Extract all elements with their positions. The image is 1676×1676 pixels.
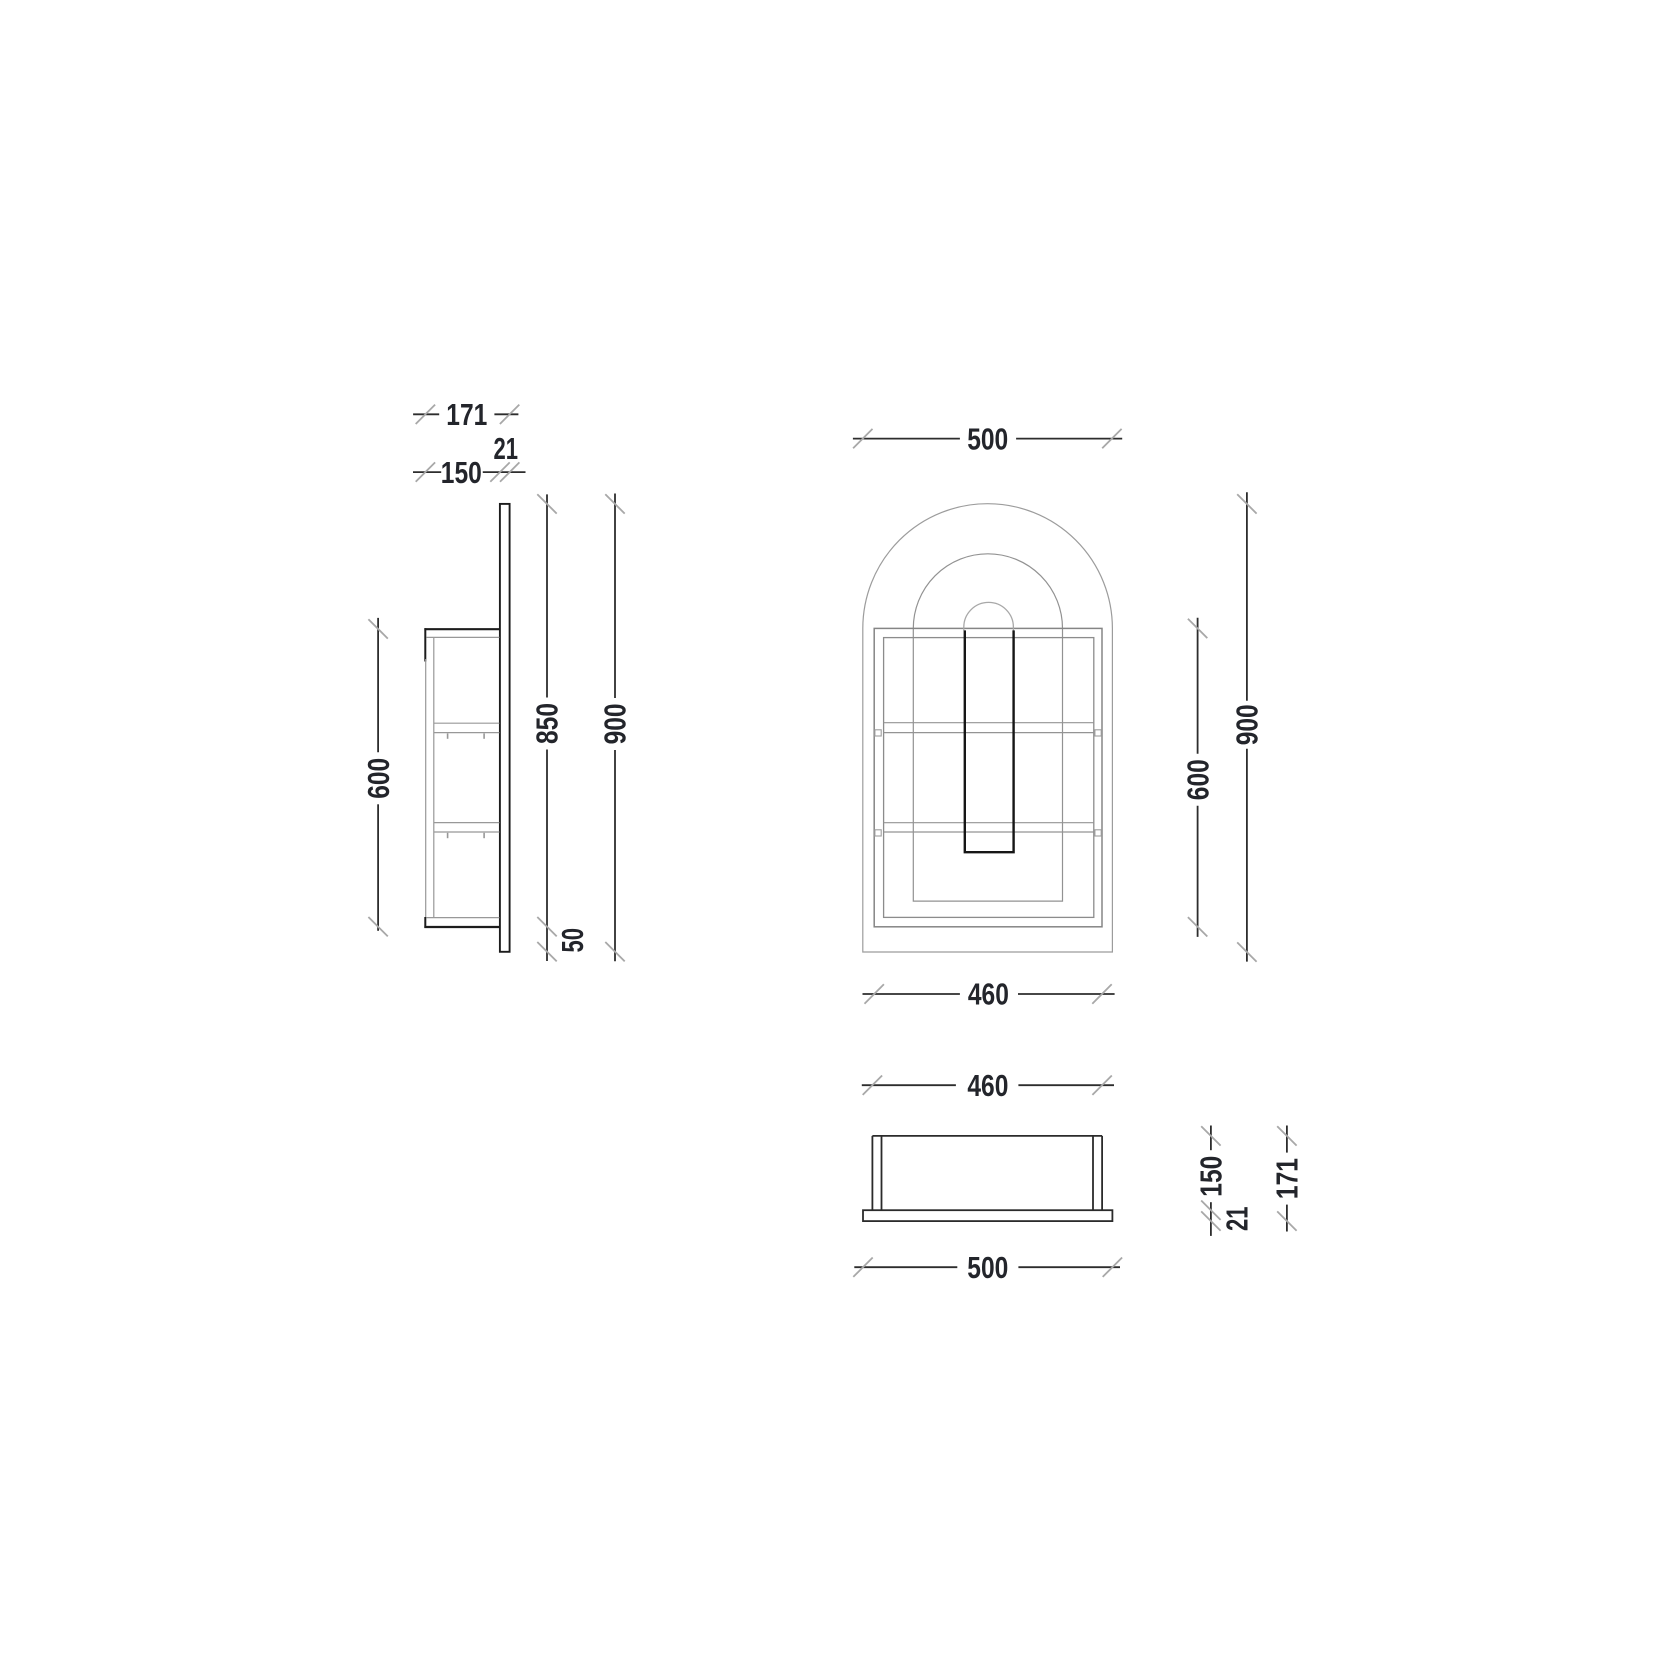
svg-text:460: 460 [968,977,1009,1012]
svg-text:150: 150 [441,455,482,490]
svg-text:460: 460 [967,1068,1008,1103]
svg-text:171: 171 [446,397,487,432]
svg-text:171: 171 [1270,1158,1305,1199]
svg-text:150: 150 [1194,1156,1229,1197]
svg-text:900: 900 [1230,704,1265,745]
svg-text:900: 900 [598,703,633,744]
svg-text:600: 600 [1180,759,1215,800]
svg-text:850: 850 [530,703,565,744]
svg-text:21: 21 [1220,1207,1255,1232]
svg-text:600: 600 [361,758,396,799]
svg-text:500: 500 [967,1250,1008,1285]
svg-text:21: 21 [494,431,519,466]
svg-text:500: 500 [967,421,1008,456]
svg-text:50: 50 [555,928,590,953]
